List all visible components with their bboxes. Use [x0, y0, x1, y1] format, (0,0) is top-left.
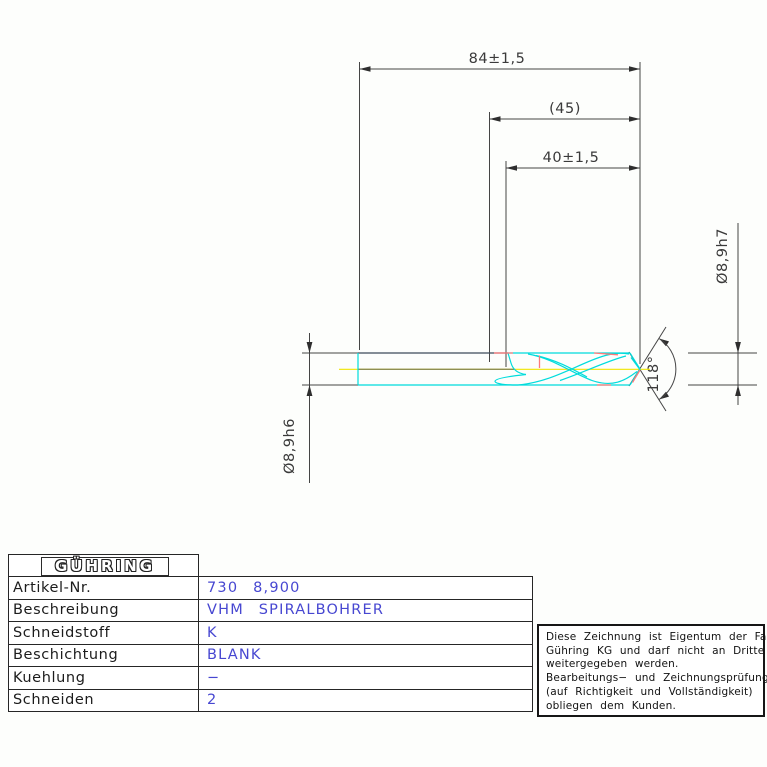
note-line: weitergegeben werden. — [546, 658, 763, 672]
table-row: Beschreibung VHM SPIRALBOHRER — [9, 599, 532, 622]
row-label: Beschreibung — [9, 600, 199, 622]
row-value: 730 8,900 — [199, 577, 532, 599]
row-label: Kuehlung — [9, 667, 199, 689]
row-value: VHM SPIRALBOHRER — [199, 600, 532, 622]
dim-overall-length: 84±1,5 — [469, 51, 526, 67]
row-value: 2 — [199, 690, 532, 712]
note-line: Bearbeitungs− und Zeichnungsprüfung — [546, 672, 763, 686]
extension-lines — [302, 62, 757, 483]
table-row: Kuehlung − — [9, 666, 532, 689]
row-label: Artikel-Nr. — [9, 577, 199, 599]
logo-cell: GÜHRING — [8, 554, 199, 577]
note-line: obliegen dem Kunden. — [546, 700, 763, 714]
row-label: Schneidstoff — [9, 622, 199, 644]
dim-flute-length: 40±1,5 — [543, 150, 600, 166]
dim-shank-diameter: Ø8,9h6 — [282, 418, 298, 474]
dim-front-diameter: Ø8,9h7 — [715, 228, 731, 284]
logo-box: GÜHRING — [41, 557, 169, 576]
guehring-logo: GÜHRING — [55, 559, 155, 574]
table-row: Schneidstoff K — [9, 621, 532, 644]
row-value: BLANK — [199, 645, 532, 667]
ownership-note: Diese Zeichnung ist Eigentum der Fa. Güh… — [537, 624, 765, 717]
technical-drawing: 84±1,5 (45) 40±1,5 Ø8,9h7 Ø8,9h6 118° — [0, 0, 767, 545]
drawing-sheet: { "drawing": { "dimensions": { "overall_… — [0, 0, 767, 767]
title-block-table: Artikel-Nr. 730 8,900 Beschreibung VHM S… — [8, 576, 533, 712]
dim-point-angle: 118° — [646, 356, 662, 393]
dim-step-length: (45) — [549, 101, 581, 117]
table-row: Beschichtung BLANK — [9, 644, 532, 667]
row-label: Schneiden — [9, 690, 199, 712]
table-row: Artikel-Nr. 730 8,900 — [9, 577, 532, 599]
table-row: Schneiden 2 — [9, 689, 532, 712]
note-line: Gühring KG und darf nicht an Dritte — [546, 645, 763, 659]
dimension-arrows — [307, 66, 741, 399]
note-line: (auf Richtigkeit und Vollständigkeit) — [546, 686, 763, 700]
drill-body — [339, 353, 650, 385]
row-value: K — [199, 622, 532, 644]
row-label: Beschichtung — [9, 645, 199, 667]
note-line: Diese Zeichnung ist Eigentum der Fa. — [546, 631, 763, 645]
row-value: − — [199, 667, 532, 689]
